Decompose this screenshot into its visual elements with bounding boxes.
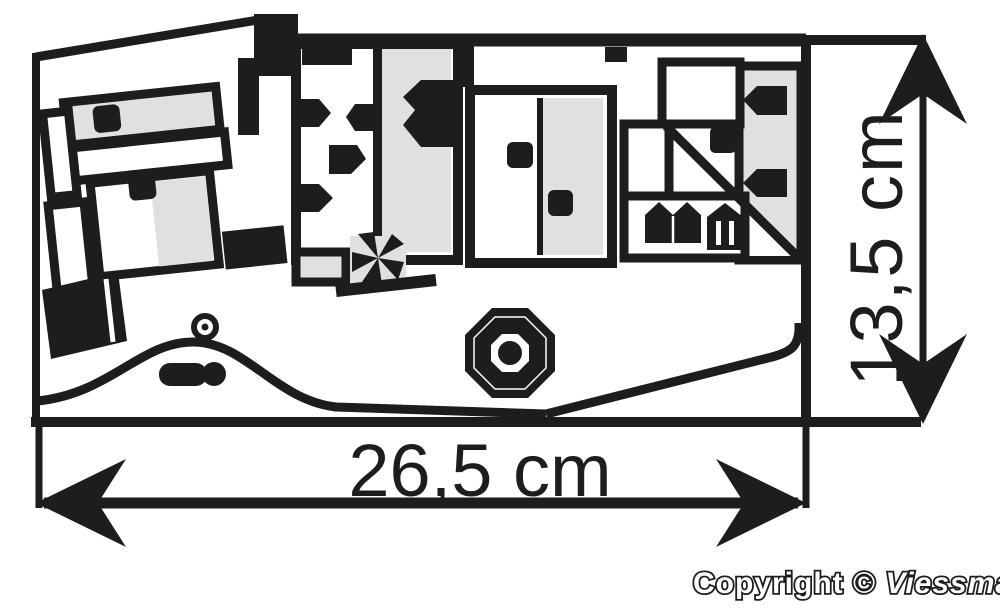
left-main-room-gray-part [150, 176, 214, 266]
gabled-house-slit-1 [716, 221, 721, 245]
wall-stub-vertical [238, 58, 259, 135]
left-column-room-a [43, 111, 78, 197]
twin-divider-wall [537, 98, 543, 255]
bench-body [159, 363, 207, 386]
copyright-text: Copyright © Viessmann [693, 567, 1000, 600]
right-top-room [662, 62, 740, 124]
floor-plan-svg: 13,5 cm 26,5 cm Copyright © Viessmann [0, 0, 1000, 608]
tree-center-dot [202, 324, 209, 331]
tree-marker [194, 316, 216, 338]
hall-gray-room [381, 49, 451, 252]
dimension-width: 26,5 cm [36, 425, 806, 547]
copyright-brand: Viessmann [885, 567, 1000, 600]
twin-roof-dot-2 [548, 190, 573, 216]
top-wall-tab-2 [605, 47, 627, 62]
boundary-top-left-slanted [36, 20, 258, 57]
building-twin-room [470, 90, 612, 263]
hall-annex-gray [296, 252, 346, 282]
right-left-room [624, 124, 669, 196]
height-dimension-label: 13,5 cm [835, 109, 918, 386]
left-roof-dot-2 [127, 171, 157, 201]
copyright-prefix: Copyright © [693, 567, 885, 600]
road-diagonal-curve [546, 323, 799, 414]
right-small-tab [710, 127, 736, 153]
bench-end-dot [202, 362, 226, 386]
building-central-hall [296, 44, 458, 291]
fountain-center-dot [498, 341, 522, 365]
gabled-house-slit-2 [729, 221, 734, 245]
twin-roof-dot-1 [507, 142, 533, 168]
fountain-octagon [465, 308, 555, 398]
left-roof-dot-1 [92, 104, 122, 134]
building-right-complex [624, 62, 801, 260]
plan-drawing: 13,5 cm 26,5 cm Copyright © Viessmann [0, 0, 1000, 608]
left-group-black-tab [222, 225, 288, 269]
twin-gray-room [542, 98, 603, 255]
hall-top-tab [302, 44, 352, 65]
dimension-height: 13,5 cm [835, 34, 967, 424]
hall-divider-wall [373, 44, 382, 260]
width-dimension-label: 26,5 cm [348, 429, 611, 512]
bench-marker [159, 362, 226, 386]
road-path [37, 323, 799, 414]
